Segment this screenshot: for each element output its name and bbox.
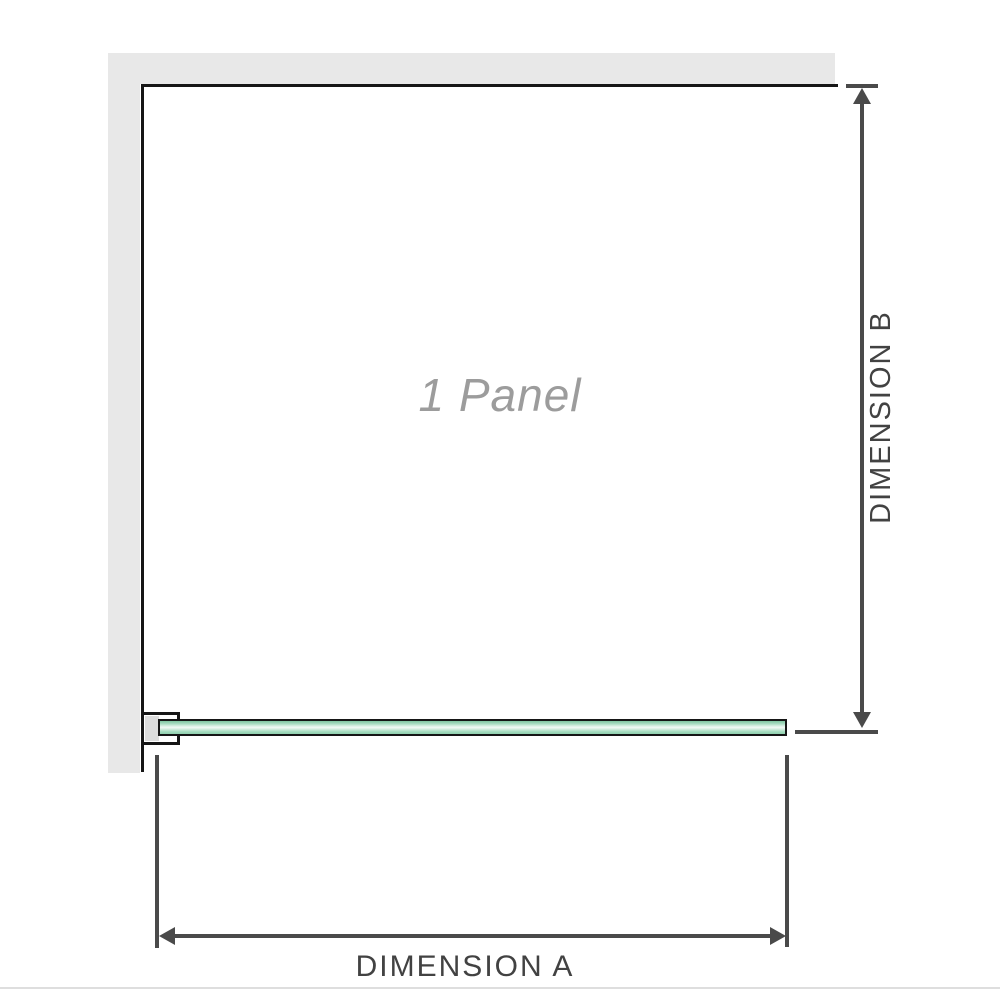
wall-top-strip [108,53,835,84]
arrow-down-icon [853,712,871,728]
arrow-up-icon [853,88,871,104]
glass-panel-bar [158,719,787,736]
panel-outline-left [141,84,144,772]
bottom-divider [0,987,1000,989]
dimension-b-bottom-tick [795,730,878,734]
arrow-right-icon [770,927,786,945]
dimension-a-line [172,934,772,938]
dimension-b-line [860,96,864,718]
dimension-a-label: DIMENSION A [265,950,665,984]
wall-bracket-pad [145,716,159,741]
dimension-a-right-extension [785,755,789,947]
panel-outline-top [141,84,838,87]
panel-count-label: 1 Panel [300,368,700,422]
panel-dimension-diagram: 1 Panel DIMENSION B DIMENSION A [0,0,1000,1000]
dimension-a-left-extension [155,755,159,948]
wall-left-strip [108,53,140,773]
dimension-b-label: DIMENSION B [865,267,897,567]
arrow-left-icon [159,927,175,945]
